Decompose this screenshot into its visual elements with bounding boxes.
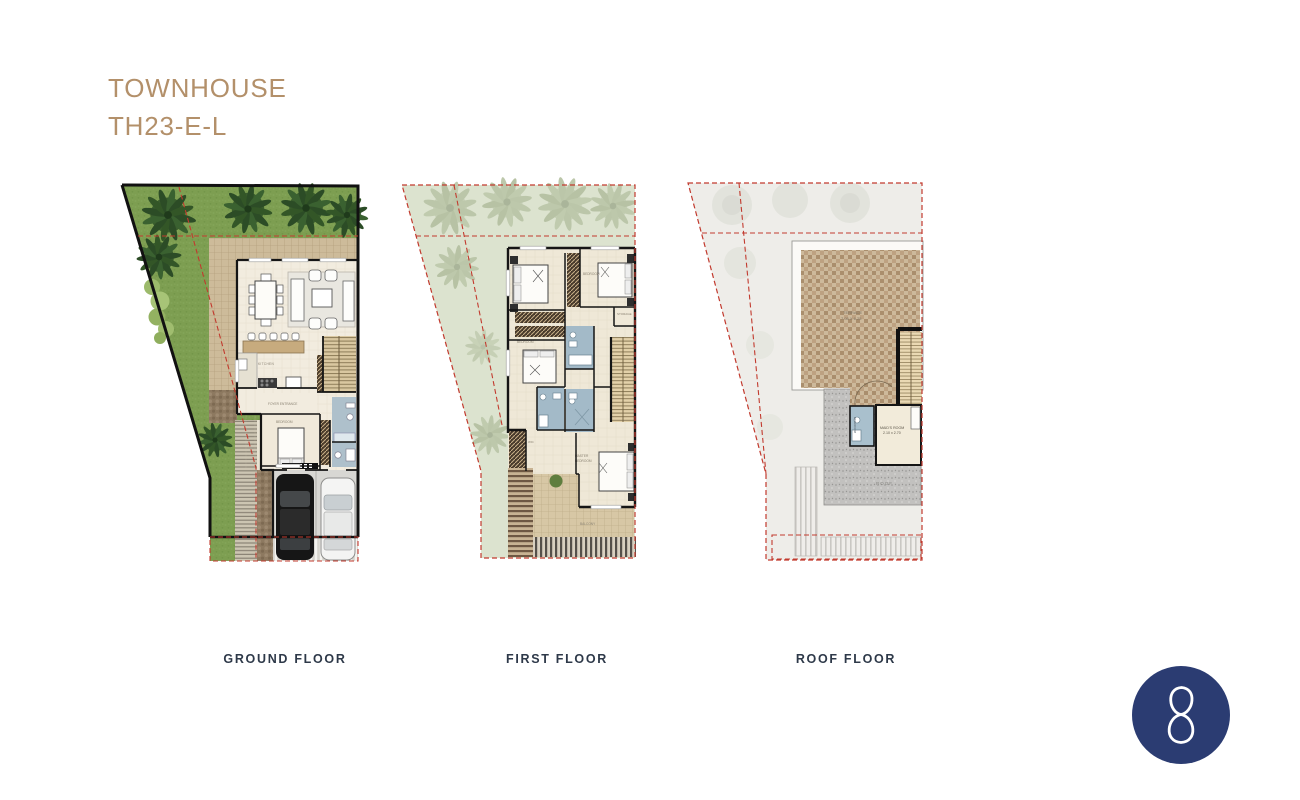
svg-text:2.10 x 2.70: 2.10 x 2.70 <box>883 431 901 435</box>
svg-text:STORAGE: STORAGE <box>617 312 632 316</box>
svg-text:BEDROOM: BEDROOM <box>575 459 592 463</box>
svg-text:MAID'S ROOM: MAID'S ROOM <box>880 426 904 430</box>
svg-text:BATHROOM: BATHROOM <box>853 417 857 434</box>
svg-text:FOYER ENTRANCE: FOYER ENTRANCE <box>268 402 297 406</box>
svg-text:ROOF: ROOF <box>876 481 893 486</box>
svg-text:KITCHEN: KITCHEN <box>258 362 274 366</box>
svg-text:WIC: WIC <box>528 440 535 444</box>
svg-text:BEDROOM: BEDROOM <box>583 272 600 276</box>
svg-text:BEDROOM: BEDROOM <box>276 420 293 424</box>
svg-text:MASTER: MASTER <box>575 454 589 458</box>
svg-text:TERRACE: TERRACE <box>843 310 862 315</box>
svg-text:BALCONY: BALCONY <box>580 522 596 526</box>
svg-text:7.05 X 6.25: 7.05 X 6.25 <box>841 316 862 321</box>
